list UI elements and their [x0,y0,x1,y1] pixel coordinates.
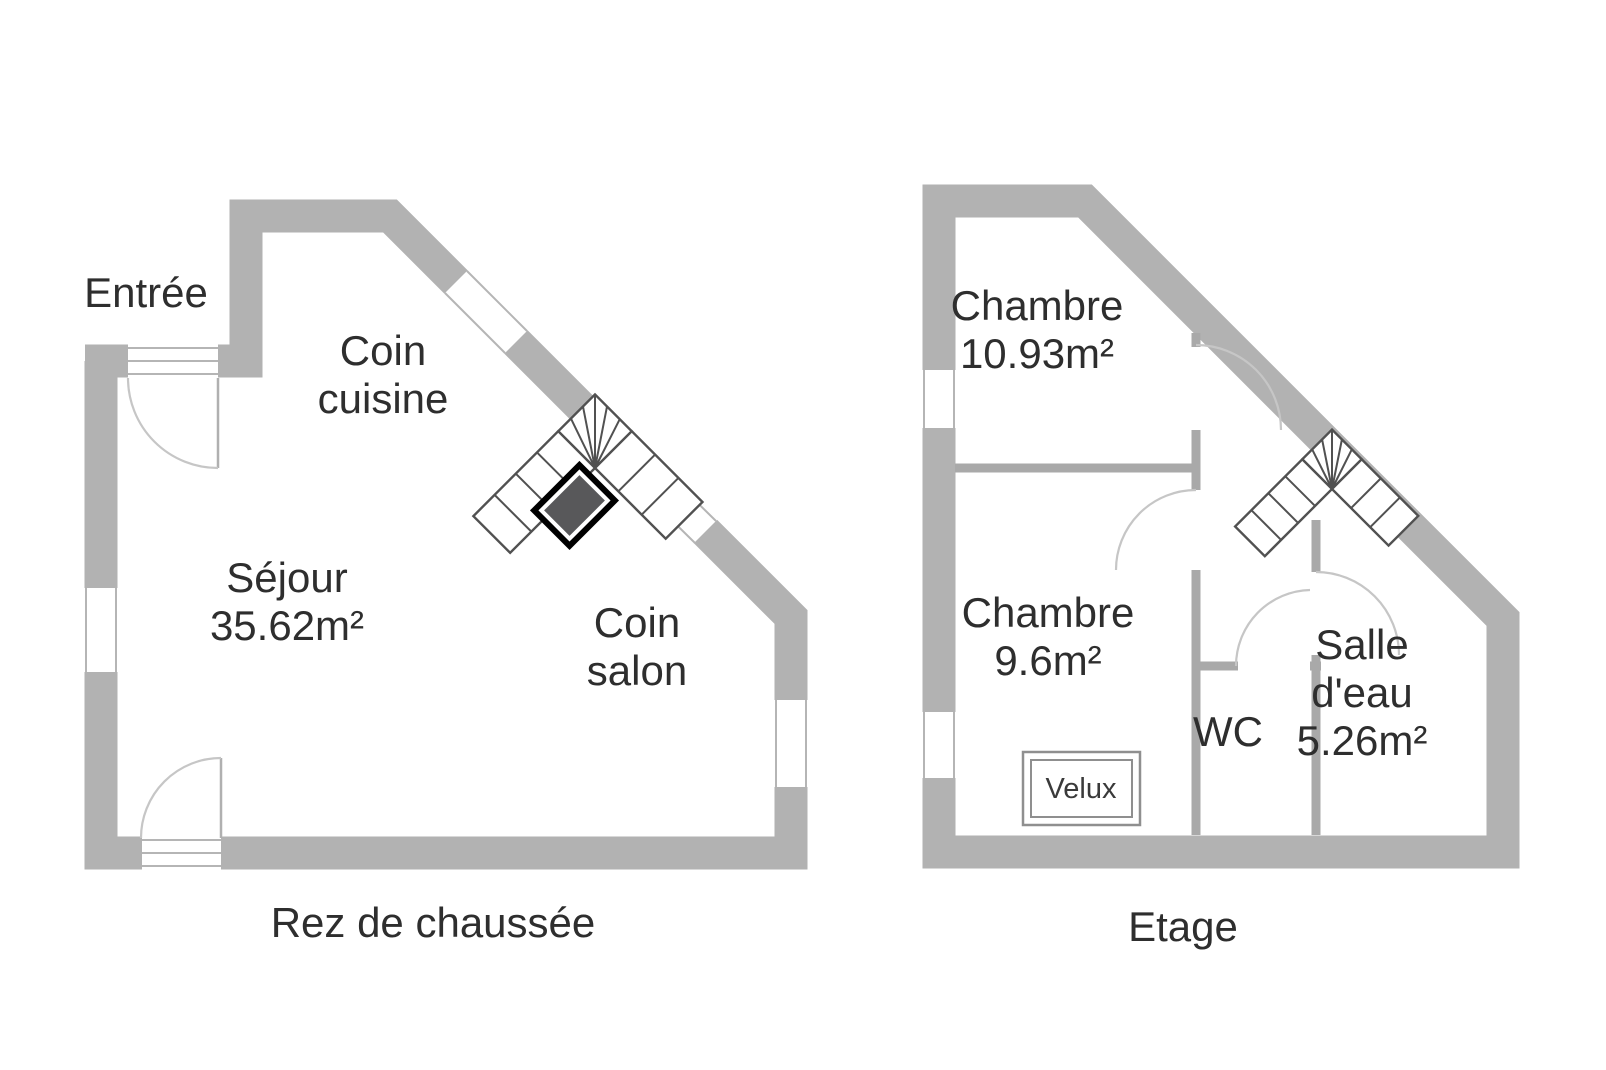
staircase-ground-floor [473,394,702,623]
label-velux: Velux [1046,773,1117,805]
label-wc: WC [1193,708,1263,755]
entry-door-arc [128,378,218,468]
door-arc-chambre-small [1116,490,1196,570]
label-coin-salon-2: salon [587,647,687,694]
label-entree: Entrée [84,269,208,316]
ground-floor-title: Rez de chaussée [271,899,596,946]
label-coin-salon-1: Coin [594,599,680,646]
label-chambre-small-2: 9.6m² [994,637,1101,684]
label-coin-cuisine-2: cuisine [318,375,449,422]
floor-plan-drawing: Entrée Coin cuisine Séjour 35.62m² Coin … [0,0,1606,1070]
ground-floor-plan: Entrée Coin cuisine Séjour 35.62m² Coin … [84,216,806,946]
label-salle-eau-3: 5.26m² [1297,717,1428,764]
bottom-door-arc [141,758,221,838]
label-sejour-1: Séjour [226,554,347,601]
staircase-upper-floor [1235,430,1418,613]
label-chambre-large-1: Chambre [951,282,1124,329]
label-coin-cuisine-1: Coin [340,327,426,374]
floor-plan-page: Entrée Coin cuisine Séjour 35.62m² Coin … [0,0,1606,1070]
label-salle-eau-1: Salle [1315,621,1408,668]
upper-floor-title: Etage [1128,903,1238,950]
label-chambre-large-2: 10.93m² [960,330,1114,377]
label-sejour-2: 35.62m² [210,602,364,649]
door-arc-wc [1236,590,1310,666]
velux-box: Velux [1023,752,1140,825]
upper-floor-plan: Velux Chambre 10.93m² Chambre 9.6m² WC S… [924,201,1503,950]
label-chambre-small-1: Chambre [962,589,1135,636]
label-salle-eau-2: d'eau [1311,669,1412,716]
